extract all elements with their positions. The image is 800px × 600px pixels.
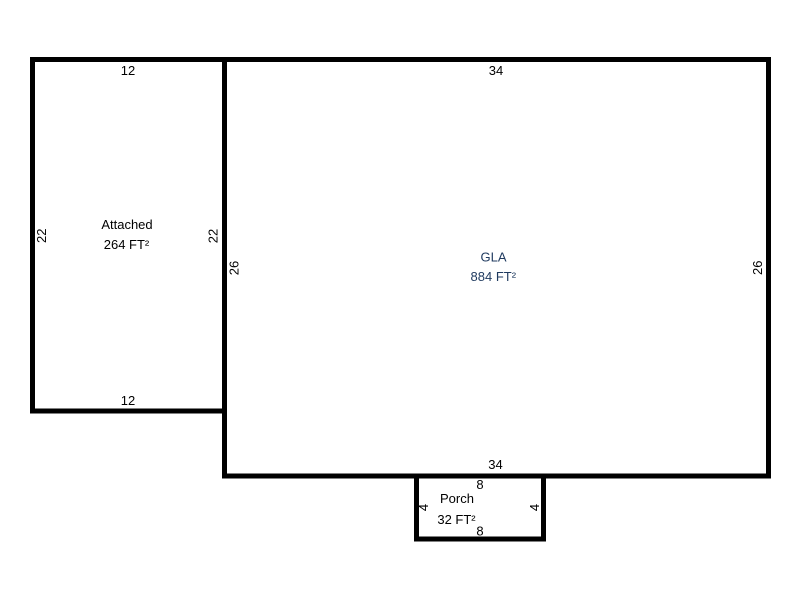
svg-text:884 FT²: 884 FT² [471,269,517,284]
svg-text:26: 26 [750,260,765,274]
svg-text:22: 22 [34,229,49,243]
svg-text:Porch: Porch [440,491,474,506]
svg-text:12: 12 [121,63,135,78]
svg-text:4: 4 [416,504,431,511]
svg-text:22: 22 [206,229,221,243]
svg-text:8: 8 [476,524,483,539]
svg-text:Attached: Attached [101,217,152,232]
svg-text:32 FT²: 32 FT² [437,512,476,527]
svg-text:GLA: GLA [480,249,506,264]
svg-text:34: 34 [488,457,502,472]
svg-text:4: 4 [527,504,542,511]
svg-text:264 FT²: 264 FT² [104,237,150,252]
svg-text:12: 12 [121,393,135,408]
svg-text:26: 26 [227,261,242,275]
svg-text:8: 8 [476,477,483,492]
svg-text:34: 34 [489,63,503,78]
